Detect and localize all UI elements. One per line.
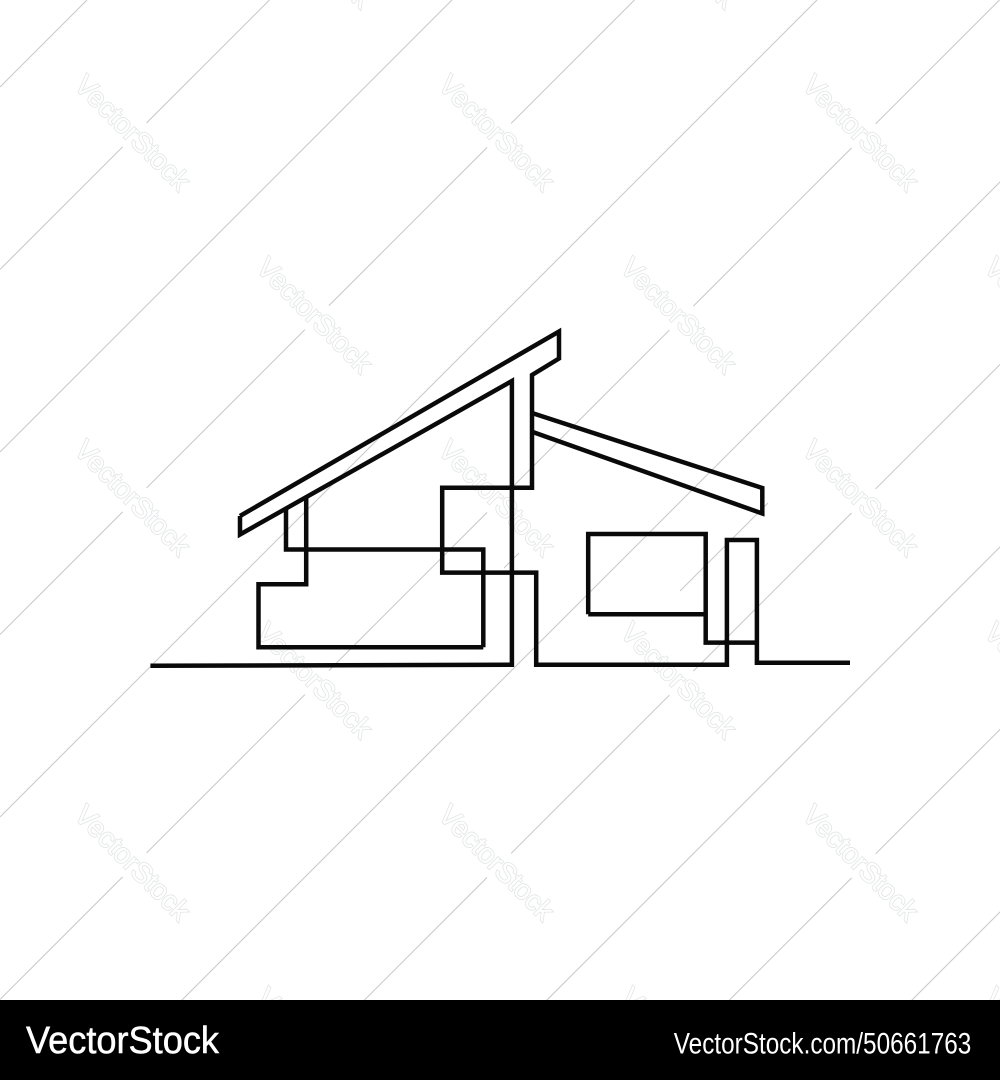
svg-text:VectorStock: VectorStock (26, 1019, 219, 1061)
svg-text:VectorStock.com/50661763: VectorStock.com/50661763 (674, 1028, 972, 1061)
